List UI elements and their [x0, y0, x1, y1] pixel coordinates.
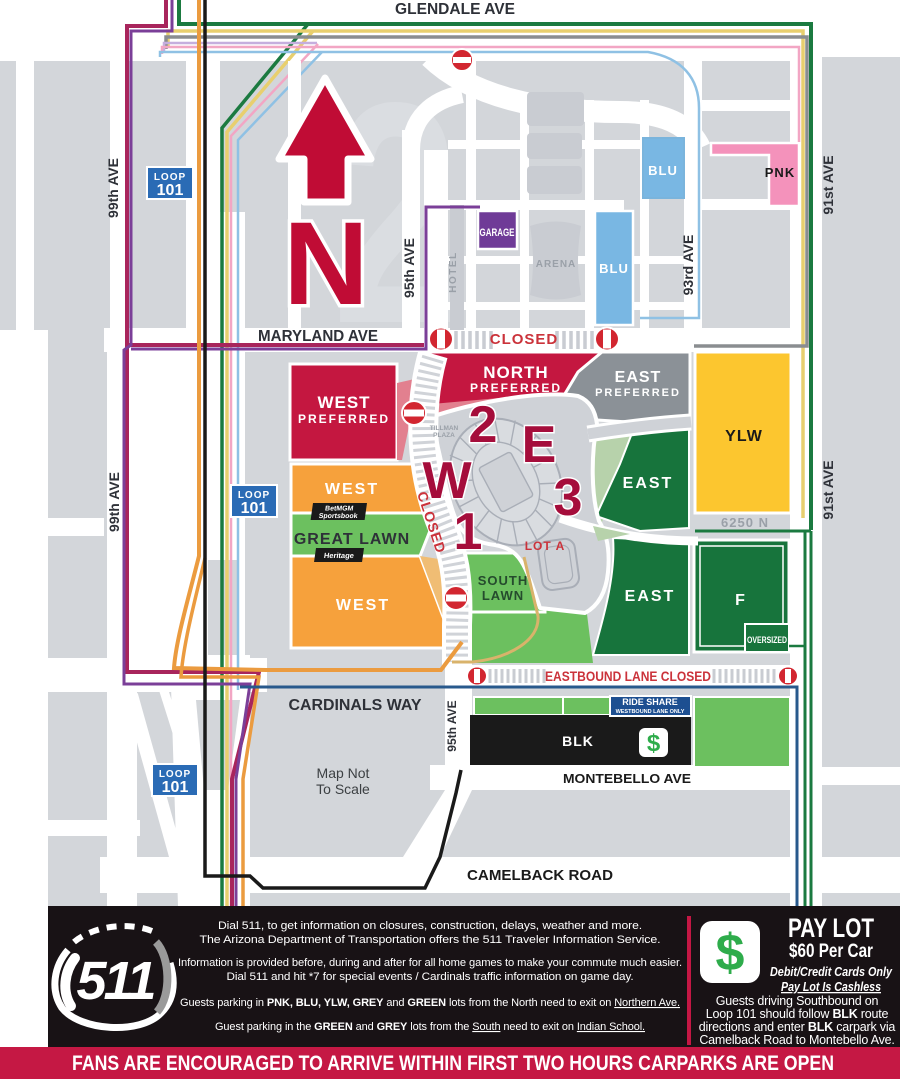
svg-text:91st AVE: 91st AVE: [820, 155, 836, 214]
svg-text:N: N: [283, 198, 368, 330]
svg-text:LAWN: LAWN: [482, 588, 524, 603]
svg-text:FANS ARE ENCOURAGED TO ARRIVE: FANS ARE ENCOURAGED TO ARRIVE WITHIN FIR…: [72, 1052, 834, 1075]
svg-text:CARDINALS WAY: CARDINALS WAY: [289, 697, 422, 714]
svg-text:BetMGM: BetMGM: [325, 506, 354, 513]
svg-text:BLK: BLK: [562, 733, 594, 749]
svg-text:Dial 511, to get information o: Dial 511, to get information on closures…: [218, 920, 642, 932]
svg-text:WEST: WEST: [336, 597, 390, 614]
svg-text:6250 N: 6250 N: [721, 515, 769, 530]
svg-text:99th AVE: 99th AVE: [105, 158, 121, 218]
svg-text:PAY LOT: PAY LOT: [788, 913, 874, 943]
svg-text:99th AVE: 99th AVE: [106, 472, 122, 532]
svg-text:MONTEBELLO AVE: MONTEBELLO AVE: [563, 771, 691, 786]
svg-text:EASTBOUND LANE CLOSED: EASTBOUND LANE CLOSED: [545, 669, 711, 684]
svg-text:CAMELBACK ROAD: CAMELBACK ROAD: [467, 867, 613, 884]
svg-text:LOT A: LOT A: [525, 539, 566, 553]
svg-text:Pay Lot Is Cashless: Pay Lot Is Cashless: [781, 979, 881, 994]
svg-text:CLOSED: CLOSED: [490, 331, 559, 348]
svg-text:WEST: WEST: [317, 393, 370, 412]
svg-text:3: 3: [554, 469, 583, 527]
svg-text:BLU: BLU: [648, 163, 678, 178]
svg-text:PREFERRED: PREFERRED: [595, 387, 681, 399]
svg-text:PREFERRED: PREFERRED: [470, 381, 562, 395]
svg-text:$60 Per Car: $60 Per Car: [789, 941, 873, 962]
svg-text:Information is provided before: Information is provided before, during a…: [178, 957, 682, 969]
svg-text:Debit/Credit Cards Only: Debit/Credit Cards Only: [770, 964, 893, 979]
svg-text:1: 1: [454, 503, 483, 561]
svg-text:MARYLAND AVE: MARYLAND AVE: [258, 328, 378, 345]
svg-text:Guest parking in the GREEN and: Guest parking in the GREEN and GREY lots…: [215, 1021, 645, 1033]
svg-text:101: 101: [241, 500, 268, 517]
svg-text:F: F: [735, 592, 745, 609]
svg-text:101: 101: [157, 182, 184, 199]
svg-text:BLU: BLU: [599, 261, 629, 276]
svg-text:WEST: WEST: [325, 481, 379, 498]
svg-text:SOUTH: SOUTH: [478, 573, 529, 588]
svg-text:Camelback Road to Montebello A: Camelback Road to Montebello Ave.: [699, 1033, 894, 1047]
svg-text:91st AVE: 91st AVE: [820, 460, 836, 519]
svg-text:EAST: EAST: [625, 588, 676, 605]
svg-text:E: E: [522, 416, 557, 474]
svg-text:The Arizona Department of Tran: The Arizona Department of Transportation…: [200, 934, 661, 946]
svg-text:PNK: PNK: [765, 165, 795, 180]
svg-text:101: 101: [162, 779, 189, 796]
svg-text:OVERSIZED: OVERSIZED: [747, 635, 787, 646]
svg-text:Loop 101 should follow BLK rou: Loop 101 should follow BLK route: [706, 1007, 889, 1021]
svg-text:RIDE SHARE: RIDE SHARE: [622, 697, 678, 707]
svg-text:Heritage: Heritage: [323, 551, 354, 560]
svg-text:EAST: EAST: [623, 475, 674, 492]
svg-text:Map Not: Map Not: [317, 765, 370, 781]
svg-text:93rd AVE: 93rd AVE: [680, 235, 696, 296]
svg-text:GLENDALE AVE: GLENDALE AVE: [395, 1, 515, 18]
svg-text:To Scale: To Scale: [316, 781, 370, 797]
svg-text:GARAGE: GARAGE: [480, 227, 515, 239]
svg-text:GREAT LAWN: GREAT LAWN: [294, 531, 410, 548]
svg-text:directions and enter BLK carpa: directions and enter BLK carpark via: [699, 1020, 896, 1034]
svg-text:PREFERRED: PREFERRED: [298, 412, 390, 426]
svg-text:Sportsbook: Sportsbook: [318, 513, 358, 520]
svg-text:Guests driving Southbound on: Guests driving Southbound on: [716, 994, 879, 1008]
svg-text:$: $: [647, 730, 661, 757]
svg-text:$: $: [716, 924, 745, 982]
svg-text:511: 511: [76, 951, 154, 1011]
svg-text:PLAZA: PLAZA: [433, 432, 455, 439]
svg-text:HOTEL: HOTEL: [448, 251, 459, 292]
svg-text:WESTBOUND LANE ONLY: WESTBOUND LANE ONLY: [616, 709, 685, 715]
svg-text:EAST: EAST: [615, 369, 662, 386]
svg-text:ARENA: ARENA: [536, 259, 577, 270]
svg-text:NORTH: NORTH: [483, 363, 548, 382]
svg-text:TILLMAN: TILLMAN: [430, 425, 459, 432]
svg-text:95th AVE: 95th AVE: [401, 238, 417, 298]
svg-text:W: W: [422, 452, 472, 510]
svg-text:Guests parking in PNK, BLU, YL: Guests parking in PNK, BLU, YLW, GREY an…: [180, 997, 680, 1009]
svg-text:95th AVE: 95th AVE: [445, 700, 459, 751]
svg-text:YLW: YLW: [725, 428, 763, 445]
svg-text:Dial 511 and hit *7 for specia: Dial 511 and hit *7 for special events /…: [227, 971, 634, 983]
svg-text:2: 2: [469, 396, 498, 454]
